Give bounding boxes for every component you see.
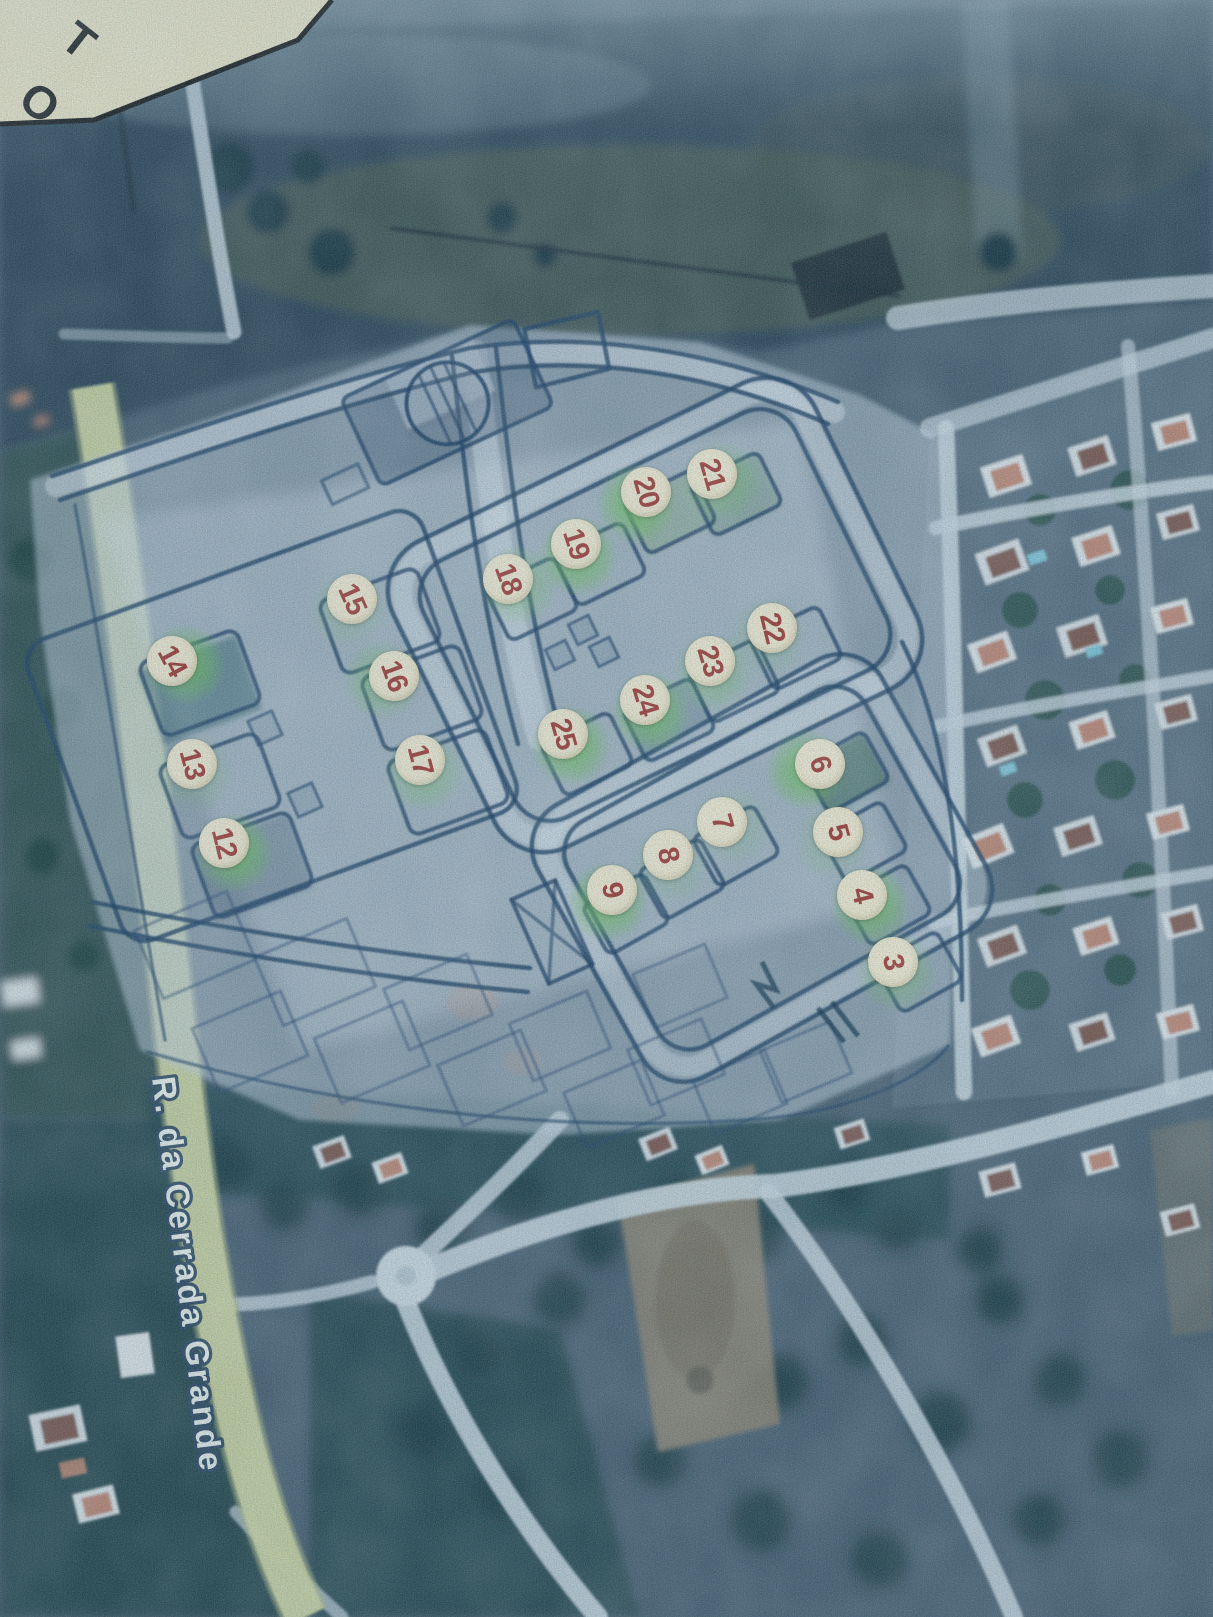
- marker-disc: 25: [538, 709, 588, 759]
- lot-marker-15[interactable]: 15: [327, 574, 377, 624]
- lot-marker-9[interactable]: 9: [587, 865, 637, 915]
- lot-marker-23[interactable]: 23: [685, 636, 735, 686]
- markers-layer: 34567891213141516171819202122232425: [0, 0, 1213, 1617]
- marker-disc: 16: [369, 651, 419, 701]
- lot-marker-6[interactable]: 6: [795, 739, 845, 789]
- marker-disc: 15: [327, 574, 377, 624]
- marker-disc: 6: [795, 739, 845, 789]
- marker-disc: 17: [395, 735, 445, 785]
- marker-disc: 23: [685, 636, 735, 686]
- lot-marker-12[interactable]: 12: [199, 818, 249, 868]
- lot-marker-18[interactable]: 18: [483, 554, 533, 604]
- scanned-aerial-map: R. da Cerrada Grande T O 345678912131415…: [0, 0, 1213, 1617]
- lot-marker-16[interactable]: 16: [369, 651, 419, 701]
- marker-disc: 19: [551, 519, 601, 569]
- marker-disc: 5: [813, 807, 863, 857]
- lot-marker-17[interactable]: 17: [395, 735, 445, 785]
- marker-disc: 24: [620, 675, 670, 725]
- marker-disc: 13: [167, 739, 217, 789]
- marker-number: 9: [583, 861, 642, 920]
- marker-disc: 14: [147, 636, 197, 686]
- marker-disc: 8: [643, 830, 693, 880]
- marker-disc: 18: [483, 554, 533, 604]
- marker-disc: 7: [697, 797, 747, 847]
- lot-marker-20[interactable]: 20: [621, 467, 671, 517]
- lot-marker-7[interactable]: 7: [697, 797, 747, 847]
- lot-marker-21[interactable]: 21: [687, 449, 737, 499]
- lot-marker-5[interactable]: 5: [813, 807, 863, 857]
- lot-marker-25[interactable]: 25: [538, 709, 588, 759]
- lot-marker-8[interactable]: 8: [643, 830, 693, 880]
- marker-disc: 22: [747, 603, 797, 653]
- marker-disc: 21: [687, 449, 737, 499]
- lot-marker-24[interactable]: 24: [620, 675, 670, 725]
- marker-disc: 20: [621, 467, 671, 517]
- marker-disc: 12: [199, 818, 249, 868]
- lot-marker-14[interactable]: 14: [147, 636, 197, 686]
- lot-marker-13[interactable]: 13: [167, 739, 217, 789]
- marker-disc: 9: [587, 865, 637, 915]
- lot-marker-22[interactable]: 22: [747, 603, 797, 653]
- lot-marker-19[interactable]: 19: [551, 519, 601, 569]
